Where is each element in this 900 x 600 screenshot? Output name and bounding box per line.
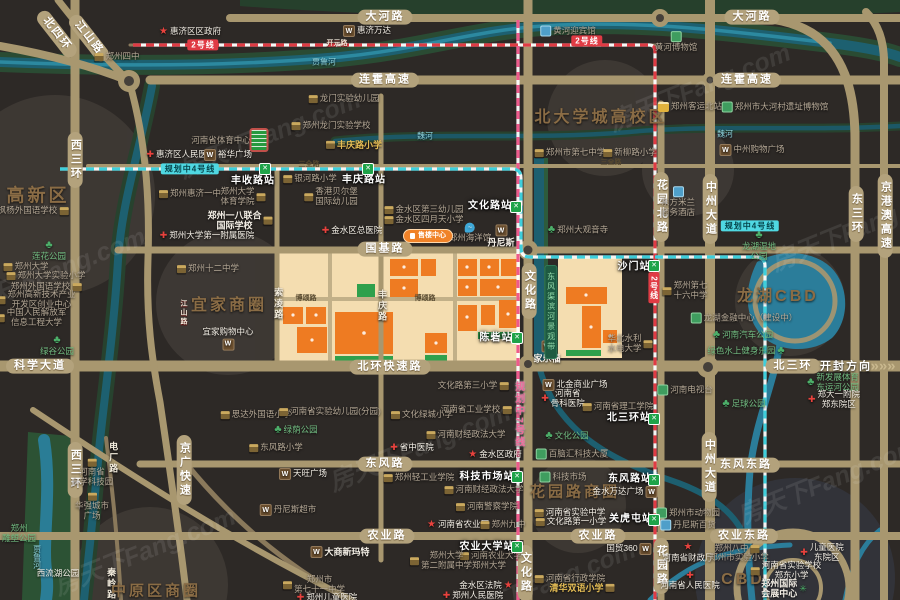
school-icon	[456, 503, 465, 511]
poi-school: 河南警察学院	[456, 502, 518, 512]
road-badge: 科学大道	[6, 359, 74, 374]
poi-mall: W惠济万达	[343, 25, 391, 37]
poi-school: 郑州轻工业学院	[384, 473, 455, 483]
poi-school: 文化路第三小学	[438, 381, 509, 391]
poi-hosp: ✚金水区总医院	[322, 226, 383, 236]
road-name: 江山路	[179, 300, 187, 327]
poi-label: 郑州市第七中学	[546, 148, 606, 158]
poi-label: 黄河博物馆	[655, 43, 698, 53]
mall-icon: W	[204, 149, 216, 161]
direction-label: 开封方向	[820, 361, 872, 374]
poi-label: 东方米兰商务酒店	[661, 198, 695, 218]
poi-mus: 科技市场	[539, 472, 586, 483]
poi-label: 清华双语小学	[549, 583, 603, 593]
poi-label: 郑州儿童医院	[306, 593, 357, 600]
mus-icon	[722, 102, 733, 113]
poi-label: 银河路小学	[294, 174, 337, 184]
road-name: 索凌路	[273, 288, 283, 321]
mall-icon: W	[260, 504, 272, 516]
road-badge: 中州大道	[702, 432, 717, 502]
road-name: 博颂路	[415, 295, 436, 303]
school-icon	[444, 486, 453, 494]
metro-station-label[interactable]: 陈砦站	[480, 332, 513, 344]
poi-park: ♣绿荫公园	[274, 425, 317, 436]
school-icon	[94, 53, 103, 61]
school-icon	[480, 521, 489, 529]
poi-label: 郑州轻工业学院	[395, 473, 455, 483]
park-icon: ♣	[45, 240, 52, 251]
poi-label: 国贸360	[606, 544, 637, 554]
mall-icon: W	[222, 338, 234, 350]
poi-label: 丰庆路小学	[337, 140, 382, 150]
hosp-icon: ✚	[390, 443, 398, 452]
poi-mus: 黄河博物馆	[655, 31, 698, 53]
poi-school: 郑州惠济一中	[159, 189, 221, 199]
poi-school: 枫杨外国语学校	[0, 206, 68, 216]
poi-hosp: ✚郑州大学第一附属医院	[160, 231, 255, 241]
poi-school: 郑州大学体育学院	[220, 187, 265, 207]
poi-label: 郑州市大河村遗址博物馆	[735, 102, 829, 112]
hosp-icon: ✚	[686, 571, 694, 580]
poi-school: 郑州一八联合国际学校	[207, 211, 272, 232]
poi-label: 中国人民解放军信息工程大学	[7, 308, 67, 328]
poi-label: 郑州四中	[105, 52, 139, 62]
poi-mall: W丹尼斯超市	[260, 504, 317, 516]
mall-icon: W	[495, 224, 507, 236]
poi-label: 西流湖公园	[37, 569, 80, 579]
district-label: 龙湖CBD	[737, 288, 819, 306]
poi-label: 宜家购物中心	[202, 328, 253, 338]
poi-gov: ★河南省财政厅	[662, 543, 713, 564]
school-icon	[221, 411, 230, 419]
poi-label: 河南省实验幼儿园(分园)	[290, 407, 381, 417]
poi-label: 郑州客运北站	[671, 102, 722, 112]
watermark: 房天下Fang.com	[733, 433, 900, 532]
road-badge: 农业路	[360, 529, 415, 544]
school-icon	[326, 141, 335, 149]
school-icon	[502, 406, 511, 414]
poi-bus: 郑州客运北站	[658, 102, 722, 112]
poi-label: 河南省体育中心	[191, 136, 251, 146]
poi-school: 郑州十二中学	[177, 264, 239, 274]
school-icon	[159, 190, 168, 198]
poi-label: 枫杨外国语学校	[0, 206, 57, 216]
school-icon	[410, 557, 419, 565]
metro-station-icon[interactable]: ✕	[510, 201, 522, 213]
road-badge: 北三环	[766, 359, 821, 374]
park-icon: ♣	[777, 346, 784, 357]
mall-icon: W	[279, 468, 291, 480]
metro-station-icon[interactable]: ✕	[511, 332, 523, 344]
poi-label: 绿荫公园	[284, 425, 318, 435]
poi-school: 郑州市第七中学	[535, 148, 606, 158]
school-icon	[751, 567, 760, 575]
school-icon	[177, 265, 186, 273]
school-icon	[264, 217, 273, 225]
hotel-icon	[540, 26, 551, 37]
school-icon	[499, 382, 508, 390]
road-badge: 连霍高速	[351, 73, 419, 88]
metro-station-icon[interactable]: ✕	[648, 260, 660, 272]
park-icon: ♣	[755, 230, 762, 241]
poi-label: 河南电视台	[670, 385, 713, 395]
poi-label: 绿谷公园	[40, 347, 74, 357]
poi-park: ♣文化公园	[545, 431, 588, 442]
map-canvas: 房天下Fang.com房天下Fang.com房天下Fang.com房天下Fang…	[0, 0, 900, 600]
metro-station-label[interactable]: 沙门站	[618, 261, 651, 273]
poi-school: 东风路小学	[249, 443, 303, 453]
poi-label: 香港贝尔堡国际幼儿园	[315, 187, 358, 207]
park-icon: ♣	[807, 378, 814, 389]
hosp-icon: ✚	[443, 591, 451, 600]
school-icon	[283, 175, 292, 183]
metro-station-icon[interactable]: ✕	[648, 413, 660, 425]
poi-hotel: 东方米兰商务酒店	[661, 186, 695, 218]
poi-mall: W天旺广场	[279, 468, 327, 480]
labels-layer: 房天下Fang.com房天下Fang.com房天下Fang.com房天下Fang…	[0, 0, 900, 600]
gov-icon: ★	[159, 27, 168, 37]
hosp-icon: ✚	[146, 150, 154, 159]
poi-label: 郑州一八联合国际学校	[207, 211, 261, 232]
school-icon	[6, 272, 15, 280]
road-badge: 连霍高速	[713, 73, 781, 88]
poi-label: 河南财经政法大学	[437, 430, 505, 440]
poi-label: 丹尼斯	[487, 237, 514, 247]
school-icon	[535, 149, 544, 157]
hosp-icon: ✚	[297, 593, 305, 600]
mus-icon	[539, 472, 550, 483]
school-icon	[535, 509, 544, 517]
poi-park: ♣绿谷公园	[40, 335, 74, 357]
poi-mus: 郑州市动物园	[656, 508, 720, 519]
metro-line-label-line7: 规划中7号线	[511, 377, 525, 453]
poi-mus: 百脑汇科技大厦	[536, 449, 609, 460]
poi-conv: 郑州国际会展中心✳	[761, 579, 807, 600]
park-icon: ♣	[713, 330, 720, 341]
mall-icon: W	[343, 25, 355, 37]
metro-station-label[interactable]: 农业大学站	[460, 541, 515, 553]
poi-label: 文化路第三小学	[438, 381, 498, 391]
hosp-icon: ✚	[322, 226, 330, 235]
poi-label: 郑州十二中学	[188, 264, 239, 274]
mus-icon	[536, 449, 547, 460]
aqua-icon: ~	[465, 223, 475, 233]
school-icon	[283, 581, 292, 589]
poi-hosp: ✚河南省人民医院	[660, 571, 720, 591]
mall-icon: W	[719, 144, 731, 156]
metro-station-label[interactable]: 北三环站	[607, 412, 651, 424]
hosp-icon: ✚	[808, 396, 816, 405]
park-icon: ♣	[548, 225, 555, 236]
poi-school: 郑州大学实验小学	[6, 271, 85, 281]
poi-school: 香港贝尔堡国际幼儿园	[304, 187, 358, 207]
school-icon	[3, 263, 12, 271]
poi-label: 惠济区区政府	[170, 27, 221, 37]
metro-station-icon[interactable]: ✕	[648, 474, 660, 486]
school-icon	[309, 95, 318, 103]
poi-mall: 金水万达广场W	[592, 486, 657, 498]
metro-line-label-line4: 规划中4号线	[161, 163, 219, 174]
metro-station-label[interactable]: 丰庆路站	[342, 174, 386, 186]
poi-label: 河南汽车公园	[722, 330, 773, 340]
poi-label: 郑州大学体育学院	[220, 187, 254, 207]
poi-school: 龙门实验幼儿园	[309, 94, 380, 104]
poi-label: 郑州雕塑公园	[2, 524, 36, 544]
metro-line-label-line2: 2号线	[648, 272, 659, 303]
poi-school: 丰庆路小学	[326, 140, 382, 150]
poi-label: 龙门实验幼儿园	[320, 94, 380, 104]
poi-label: 河南省理工学院	[594, 402, 654, 412]
poi-label: 河南财经政法大学	[455, 485, 523, 495]
poi-mall: 宜家购物中心W	[202, 328, 253, 351]
poi-park: ♣莲花公园	[32, 240, 66, 262]
poi-label: 文化公园	[555, 431, 589, 441]
poi-gov: ★惠济区区政府	[159, 27, 221, 37]
poi-school: 中国人民解放军信息工程大学	[0, 308, 66, 328]
river-label: 贾鲁河	[312, 57, 336, 66]
poi-label: 郑州惠济一中	[170, 189, 221, 199]
school-icon	[87, 493, 96, 501]
road-name: 丰庆路	[377, 290, 387, 323]
school-icon	[603, 149, 612, 157]
school-icon	[291, 122, 300, 130]
poi-label: 郑州国际会展中心	[761, 579, 797, 600]
gov-icon: ★	[468, 450, 477, 460]
poi-label: 龙湖金融中心（建设中）	[704, 313, 798, 323]
road-badge: 农业路	[571, 529, 626, 544]
metro-line-label-line2: 2号线	[187, 39, 218, 50]
school-icon	[384, 216, 393, 224]
mus-icon	[657, 385, 668, 396]
poi-park: ♣龙湖湿地公园	[742, 230, 776, 262]
poi-park: ♣河南汽车公园	[713, 330, 773, 341]
poi-mus: 龙湖金融中心（建设中）	[691, 313, 798, 324]
gov-icon: ★	[684, 543, 693, 553]
poi-park: ♣郑州大观音寺	[548, 225, 608, 236]
hotel-icon	[660, 520, 671, 531]
poi-school: 河南省理工学院	[583, 402, 654, 412]
poi-school: 郑州九中	[480, 520, 525, 530]
hotel-icon	[672, 186, 683, 197]
road-name: 三全路	[299, 161, 320, 169]
poi-label: 郑州海洋馆	[449, 234, 492, 244]
poi-mall: W丹尼斯	[487, 224, 514, 247]
poi-label: 绿色水上健身乐园	[707, 346, 775, 356]
poi-label: 足球公园	[732, 399, 766, 409]
road-badge: 东风路	[358, 457, 413, 472]
poi-mus: 河南电视台	[657, 385, 713, 396]
poi-school: 河南财经政法大学	[444, 485, 523, 495]
district-label: 北大学城高校区	[534, 109, 667, 127]
poi-label: 郑州大学第二附属中学	[421, 551, 472, 571]
poi-label: 文化路第一小学	[547, 517, 607, 527]
poi-mall: W中州购物广场	[719, 144, 784, 156]
poi-label: 中州购物广场	[733, 145, 784, 155]
river-label: 魏河	[417, 131, 433, 140]
gov-icon: ★	[427, 520, 436, 530]
road-badge: 北环快速路	[350, 360, 431, 375]
poi-label: 龙湖湿地公园	[742, 242, 776, 262]
poi-label: 大商新玛特	[324, 547, 369, 557]
metro-line-label-line2: 2号线	[571, 35, 602, 46]
school-icon	[391, 411, 400, 419]
park-icon: ♣	[53, 335, 60, 346]
school-icon	[249, 444, 258, 452]
poi-label: 郑大一附院郑东院区	[818, 390, 861, 410]
poi-label: 文化绿城小学	[402, 410, 453, 420]
road-badge: 大河路	[358, 10, 413, 25]
metro-station-icon[interactable]: ✕	[511, 471, 523, 483]
metro-station-label[interactable]: 关虎屯站	[609, 513, 653, 525]
park-icon: ♣	[545, 431, 552, 442]
poi-school: 郑州龙门实验学校	[291, 121, 370, 131]
poi-label: 省中医院	[400, 443, 434, 453]
river-label: 贾鲁河	[32, 545, 41, 569]
road-badge: 文化路	[522, 263, 537, 319]
poi-park: 绿色水上健身乐园♣	[707, 346, 784, 357]
poi-school: 河南财经政法大学	[426, 430, 505, 440]
poi-label: 郑州大学实验小学	[17, 271, 85, 281]
poi-school: 河南省大学科技园	[71, 459, 114, 488]
poi-label: 百脑汇科技大厦	[549, 449, 609, 459]
school-icon	[257, 193, 266, 201]
poi-school: 文化路第一小学	[536, 517, 607, 527]
poi-hosp: ✚省中医院	[390, 443, 434, 453]
metro-station-label[interactable]: 东风路站	[608, 473, 652, 485]
direction-arrows-icon: »»»	[870, 357, 895, 374]
poi-label: 金水区总医院	[331, 226, 382, 236]
poi-label: 华北水利水电大学	[607, 334, 641, 354]
poi-label: 郑州市动物园	[669, 508, 720, 518]
poi-school: 郑州大学第二附属中学	[410, 551, 472, 571]
road-badge: 东三环	[849, 186, 864, 242]
bus-icon	[658, 102, 669, 112]
poi-hosp: ✚郑州儿童医院	[297, 593, 358, 600]
school-icon	[644, 340, 653, 348]
poi-school: 文化绿城小学	[391, 410, 453, 420]
poi-hosp: ✚郑州人民医院	[443, 591, 504, 600]
poi-label: 新柳路小学	[614, 148, 657, 158]
poi-label: 郑州九中	[491, 520, 525, 530]
poi-school: 河南省实验幼儿园(分园)	[279, 407, 381, 417]
road-badge: 京广快速	[177, 435, 192, 505]
school-icon	[384, 206, 393, 214]
school-icon	[426, 431, 435, 439]
sales-center-badge[interactable]: 售楼中心	[403, 229, 453, 243]
poi-label: 郑州龙门实验学校	[302, 121, 370, 131]
metro-station-label[interactable]: 丰收路站	[231, 175, 275, 187]
school-icon	[0, 296, 5, 304]
school-icon	[87, 459, 96, 467]
poi-hosp: ✚河南省骨科医院	[541, 389, 585, 409]
road-badge: 大河路	[725, 10, 780, 25]
hosp-icon: ✚	[160, 231, 168, 240]
metro-station-label[interactable]: 文化路站	[468, 200, 512, 212]
metro-station-icon[interactable]: ✕	[511, 541, 523, 553]
poi-label: 郑州大观音寺	[557, 225, 608, 235]
poi-label: 河南省财政厅	[662, 554, 713, 564]
poi-school: 华北水利水电大学	[607, 334, 652, 354]
poi-label: 河南省人民医院	[660, 581, 720, 591]
poi-school: 新柳路小学	[603, 148, 657, 158]
road-badge: 中州大道	[703, 174, 718, 244]
mall-icon: W	[640, 543, 652, 555]
metro-line-label-line4: 规划中4号线	[721, 220, 779, 231]
district-label: 中原区商圈	[111, 582, 201, 599]
road-badge: 农业东路	[710, 529, 778, 544]
mus-icon	[670, 31, 681, 42]
poi-label: 裕华广场	[218, 150, 252, 160]
poi-mus: 郑州市大河村遗址博物馆	[722, 102, 829, 113]
hosp-icon: ✚	[541, 395, 549, 404]
poi-school: 华强城市广场	[75, 493, 109, 522]
road-badge: 东风东路	[712, 458, 780, 473]
poi-mall: W大商新玛特	[310, 546, 369, 558]
road-name: 三全路	[601, 159, 622, 167]
poi-label: 华强城市广场	[75, 502, 109, 522]
road-name: 博颂路	[296, 295, 317, 303]
poi-label: 惠济万达	[357, 26, 391, 36]
poi-school: 清华双语小学	[549, 583, 614, 593]
road-badge: 西三环	[68, 132, 83, 188]
district-label: 高新区	[7, 186, 70, 207]
school-icon	[304, 193, 313, 201]
poi-school: 银河路小学	[283, 174, 337, 184]
school-icon	[279, 408, 288, 416]
park-icon: ♣	[274, 425, 281, 436]
poi-mall: 国贸360W	[606, 543, 651, 555]
school-icon	[535, 575, 544, 583]
poi-label: 金水万达广场	[592, 487, 643, 497]
poi-label: 郑州第七十六中学	[673, 281, 707, 301]
school-icon	[0, 314, 5, 322]
poi-label: 郑州大学	[472, 561, 506, 571]
school-icon	[662, 287, 671, 295]
poi-label: 丹尼斯百货	[673, 520, 716, 530]
mus-icon	[691, 313, 702, 324]
mall-icon: W	[310, 546, 322, 558]
hosp-icon: ✚	[800, 549, 808, 558]
school-icon	[606, 584, 615, 592]
poi-hosp: ✚郑大一附院郑东院区	[808, 390, 860, 410]
poi-label: 河南警察学院	[467, 502, 518, 512]
poi-label: 河南省大学科技园	[71, 468, 114, 488]
metro-station-label[interactable]: 科技市场站	[460, 471, 515, 483]
school-icon	[384, 474, 393, 482]
poi-label: 东风路小学	[260, 443, 303, 453]
poi-label: 丹尼斯超市	[274, 505, 317, 515]
park-icon: ♣	[722, 399, 729, 410]
poi-park: ♣足球公园	[722, 399, 765, 410]
poi-label: 郑州大学第一附属医院	[169, 231, 254, 241]
road-badge: 国基路	[358, 242, 413, 257]
poi-hotel: 丹尼斯百货	[660, 520, 716, 531]
metro-station-icon[interactable]: ✕	[362, 163, 374, 175]
gov-icon: ★	[504, 581, 513, 591]
school-icon	[536, 518, 545, 526]
road-name: 开元路	[327, 40, 348, 48]
poi-label: 郑州大学	[472, 561, 506, 571]
metro-station-icon[interactable]: ✕	[648, 514, 660, 526]
poi-mall: W裕华广场	[204, 149, 252, 161]
poi-label: 郑州人民医院	[452, 591, 503, 600]
metro-station-icon[interactable]: ✕	[259, 163, 271, 175]
poi-label: 科技市场	[552, 472, 586, 482]
poi-label: 西流湖公园	[37, 569, 80, 579]
stadium-icon	[250, 128, 269, 152]
poi-label: 河南省骨科医院	[551, 389, 585, 409]
school-icon	[59, 207, 68, 215]
